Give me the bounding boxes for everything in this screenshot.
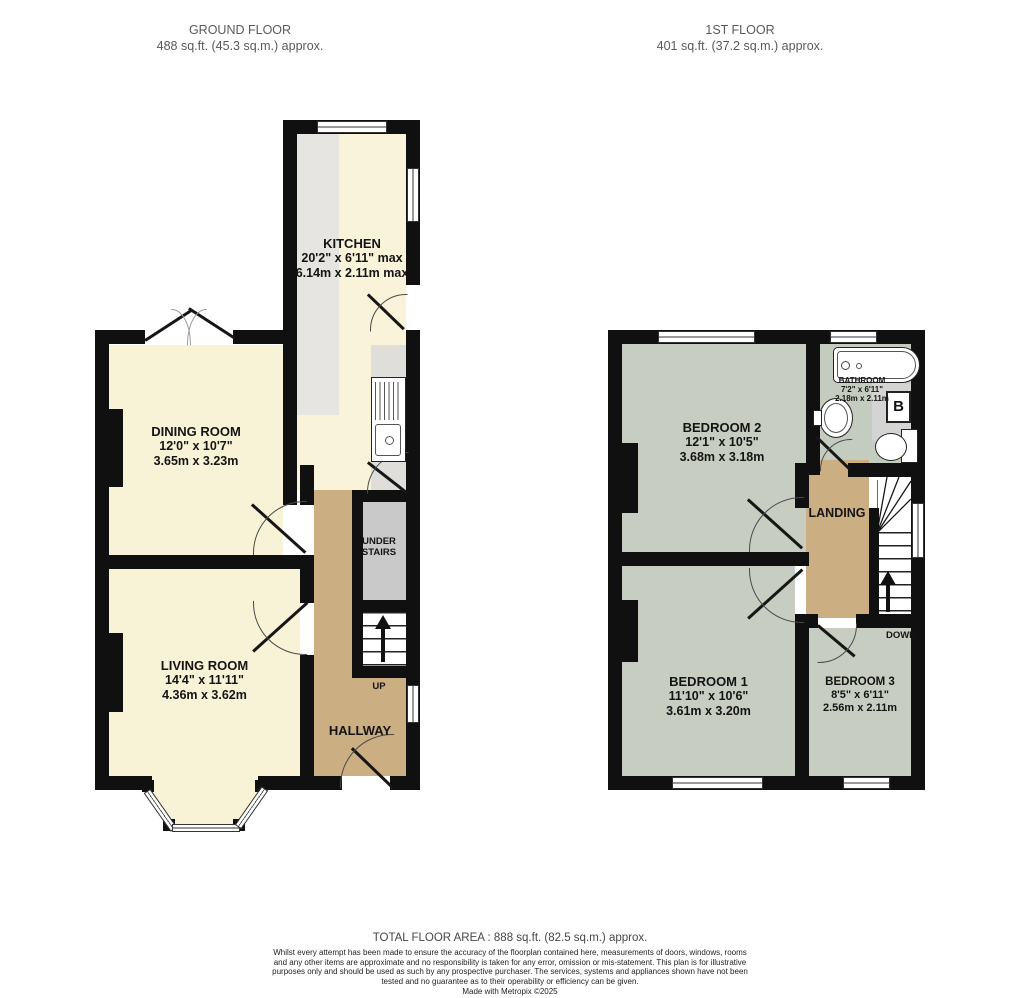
bathroom-sink (819, 398, 853, 438)
dining-room-label: DINING ROOM 12'0" x 10'7" 3.65m x 3.23m (109, 424, 283, 469)
sink-drain (385, 436, 394, 445)
disclaimer-text: Whilst every attempt has been made to en… (270, 948, 750, 986)
wall (233, 330, 297, 344)
wall (911, 330, 925, 790)
living-room-label: LIVING ROOM 14'4" x 11'11" 4.36m x 3.62m (109, 658, 300, 703)
bathroom-sink-inner (824, 403, 848, 433)
dining-room-metric: 3.65m x 3.23m (109, 454, 283, 469)
landing-label: LANDING (804, 506, 870, 520)
kitchen-label: KITCHEN 20'2" x 6'11" max 6.14m x 2.11m … (286, 236, 418, 281)
under-stairs-label: UNDER STAIRS (352, 536, 406, 558)
bathroom-metric: 2.18m x 2.11m (812, 394, 912, 403)
bathroom-label: BATHROOM 7'2" x 6'11" 2.18m x 2.11m (812, 376, 912, 403)
toilet-bowl (875, 433, 907, 461)
bedroom1-name: BEDROOM 1 (622, 674, 795, 689)
dining-room-name: DINING ROOM (109, 424, 283, 439)
bedroom1-imperial: 11'10" x 10'6" (622, 689, 795, 704)
bedroom2-name: BEDROOM 2 (638, 420, 806, 435)
bedroom3-imperial: 8'5" x 6'11" (809, 689, 911, 702)
footer: TOTAL FLOOR AREA : 888 sq.ft. (82.5 sq.m… (0, 932, 1020, 997)
bay-window (172, 824, 240, 832)
first-floor-header: 1ST FLOOR 401 sq.ft. (37.2 sq.m.) approx… (590, 22, 890, 54)
wall (856, 614, 911, 628)
window (843, 777, 890, 789)
window (830, 331, 877, 343)
bedroom1-metric: 3.61m x 3.20m (622, 704, 795, 719)
stairs-down-label: DOWN (876, 630, 926, 641)
window (912, 503, 924, 558)
ground-floor-title: GROUND FLOOR (90, 22, 390, 38)
stairs-up-label: UP (352, 681, 406, 692)
bedroom3-name: BEDROOM 3 (809, 676, 911, 689)
hallway-name: HALLWAY (310, 723, 410, 738)
bathroom-sink-pedestal (813, 410, 822, 426)
wall (869, 508, 879, 628)
wall (109, 555, 314, 569)
ground-floor-header: GROUND FLOOR 488 sq.ft. (45.3 sq.m.) app… (90, 22, 390, 54)
bedroom2-label: BEDROOM 2 12'1" x 10'5" 3.68m x 3.18m (638, 420, 806, 465)
stairs-up-arrow-stem (381, 628, 385, 662)
bathtub-drain-icon (856, 363, 862, 369)
stairs-down-arrow-stem (886, 584, 890, 612)
kitchen-metric: 6.14m x 2.11m max (286, 266, 418, 281)
wall (314, 776, 342, 790)
wall (95, 330, 109, 790)
living-room-imperial: 14'4" x 11'11" (109, 673, 300, 688)
bay-opening-floor (152, 776, 258, 790)
bathroom-imperial: 7'2" x 6'11" (812, 385, 912, 394)
stairs-down-arrow-icon (880, 571, 896, 585)
window (658, 331, 755, 343)
total-floor-area: TOTAL FLOOR AREA : 888 sq.ft. (82.5 sq.m… (0, 932, 1020, 944)
sink-basin (375, 424, 401, 456)
front-door-swing (340, 734, 444, 838)
first-floor-title: 1ST FLOOR (590, 22, 890, 38)
sink-drainer (375, 382, 401, 420)
wall (352, 502, 363, 678)
kitchen-sink (371, 377, 406, 462)
window (407, 685, 419, 723)
wall (608, 330, 925, 344)
wall (795, 552, 809, 566)
under-stairs-line1: UNDER (352, 536, 406, 547)
bedroom2-metric: 3.68m x 3.18m (638, 450, 806, 465)
wall (795, 616, 809, 790)
bedroom2-imperial: 12'1" x 10'5" (638, 435, 806, 450)
chimney-breast (622, 443, 638, 513)
wall (352, 600, 406, 612)
living-room-name: LIVING ROOM (109, 658, 300, 673)
wall (300, 465, 314, 505)
under-stairs-line2: STAIRS (352, 547, 406, 558)
first-floor-area: 401 sq.ft. (37.2 sq.m.) approx. (590, 38, 890, 54)
wall (352, 666, 406, 678)
wall (300, 655, 314, 776)
wall (390, 776, 420, 790)
wall (608, 330, 622, 790)
bedroom3-label: BEDROOM 3 8'5" x 6'11" 2.56m x 2.11m (809, 676, 911, 715)
window (407, 168, 419, 222)
hallway-label: HALLWAY (310, 723, 410, 738)
winder-stairs (877, 477, 911, 533)
hallway-floor-upper (314, 490, 352, 678)
wall (283, 120, 297, 505)
chimney-breast (622, 600, 638, 662)
window (672, 777, 763, 789)
bedroom1-label: BEDROOM 1 11'10" x 10'6" 3.61m x 3.20m (622, 674, 795, 719)
living-room-metric: 4.36m x 3.62m (109, 688, 300, 703)
kitchen-name: KITCHEN (286, 236, 418, 251)
wall (622, 552, 805, 566)
metropix-credit: Made with Metropix ©2025 (0, 987, 1020, 997)
bedroom3-metric: 2.56m x 2.11m (809, 702, 911, 715)
kitchen-imperial: 20'2" x 6'11" max (286, 251, 418, 266)
stairs-up-arrow-icon (375, 615, 391, 629)
wall (300, 569, 314, 603)
bathroom-name: BATHROOM (812, 376, 912, 385)
window (317, 121, 387, 133)
landing-name: LANDING (804, 506, 870, 520)
bathtub-tap-icon (841, 361, 850, 370)
wall (848, 463, 925, 477)
ground-floor-area: 488 sq.ft. (45.3 sq.m.) approx. (90, 38, 390, 54)
landing-floor (806, 460, 869, 618)
dining-room-imperial: 12'0" x 10'7" (109, 439, 283, 454)
